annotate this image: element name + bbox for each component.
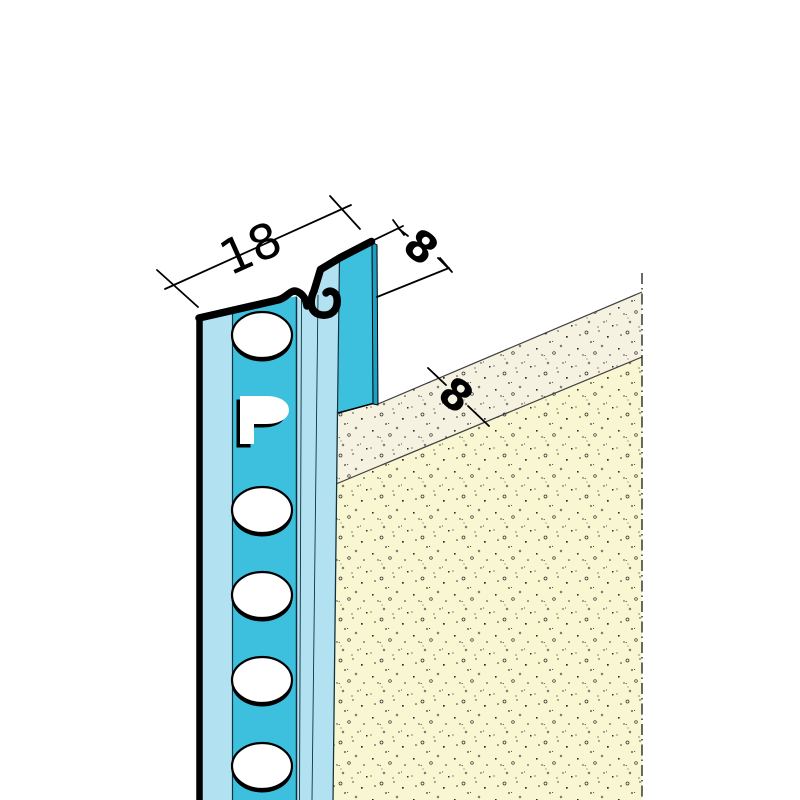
stop-flange-edge-face [372,242,378,405]
profile-left-side-face [199,309,233,800]
perforation-oval-5 [232,743,293,793]
perforation-oval-2 [232,487,293,537]
dim18-tick-left [157,270,198,307]
dim8a-tick-top [393,220,404,235]
perforation-oval-1 [232,312,293,362]
perforation-oval-3 [232,572,293,622]
profile-main-face [233,296,297,800]
stop-flange-face [338,242,373,413]
illustration-canvas: 18 8 8 [0,0,800,800]
perforation-oval-4 [232,657,293,707]
dim8a-ext-bottom [377,268,449,297]
dimension-18-label: 18 [212,211,291,287]
plaster-profile-diagram: 18 8 8 [0,0,800,800]
